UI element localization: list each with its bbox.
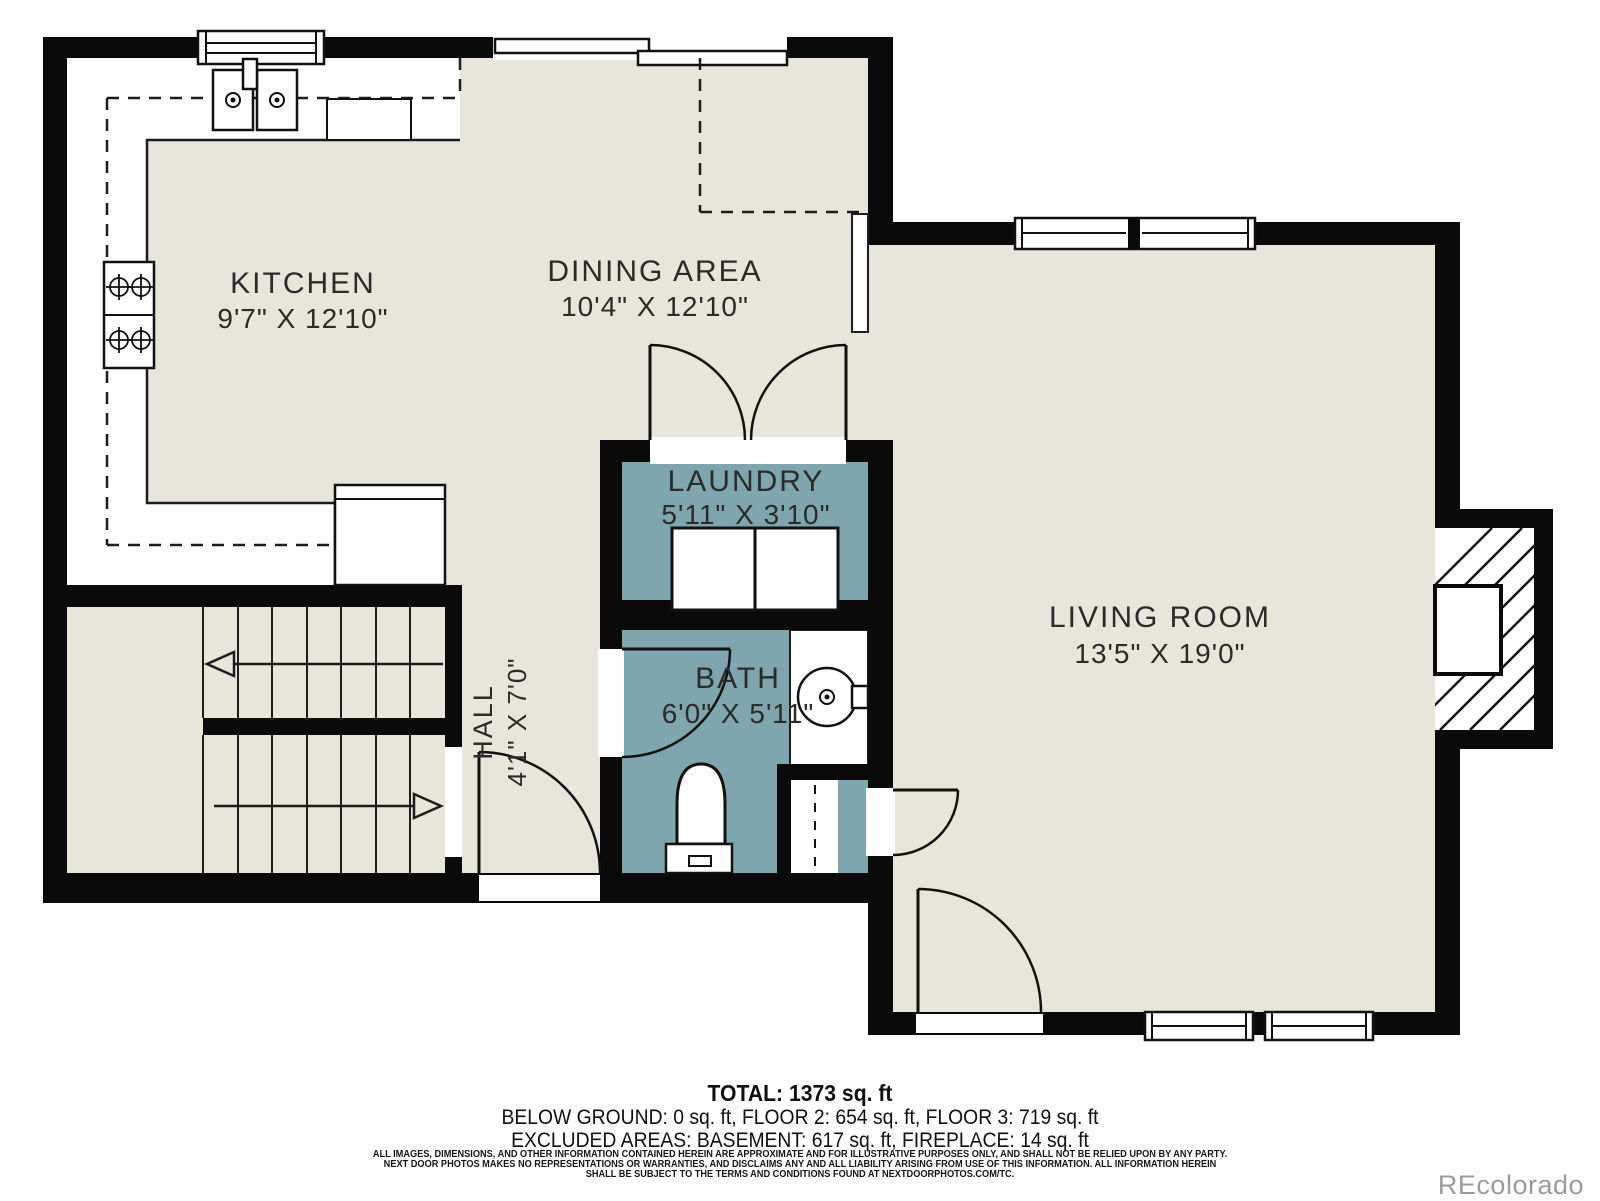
living-bottom-window-right xyxy=(1265,1012,1373,1040)
wall-left xyxy=(43,37,67,903)
dining-label: DINING AREA xyxy=(547,255,762,288)
laundry-dims: 5'11" X 3'10" xyxy=(661,499,830,530)
laundry-door-opening xyxy=(650,437,846,464)
laundry-label: LAUNDRY xyxy=(668,465,825,498)
living-top-window xyxy=(1015,218,1255,249)
wall-closet-left xyxy=(777,764,791,873)
wall-right-upper xyxy=(1435,222,1460,512)
stairs-door-opening xyxy=(445,747,462,857)
wall-kitchen-bottom xyxy=(43,585,462,607)
wall-bottom xyxy=(43,873,893,903)
wall-stairs-right-stub xyxy=(445,857,462,873)
wall-closet-top xyxy=(777,764,893,780)
fireplace-wall-right xyxy=(1534,509,1553,749)
living-bottom-window-left xyxy=(1145,1012,1253,1040)
hall-door-opening xyxy=(479,875,600,901)
disclaimer-line-3: SHALL BE SUBJECT TO THE TERMS AND CONDIT… xyxy=(64,1170,1536,1180)
refrigerator xyxy=(335,485,445,585)
hall-dims: 4'1" X 7'0" xyxy=(502,657,532,786)
pantry-shelf xyxy=(852,214,868,332)
wall-right-lower xyxy=(1435,745,1460,1035)
wall-mid-vertical xyxy=(868,440,893,1035)
kitchen-label: KITCHEN xyxy=(230,267,376,300)
bath-dims: 6'0" X 5'11" xyxy=(662,698,815,729)
bath-door-opening xyxy=(598,649,624,757)
kitchen-window xyxy=(198,31,324,64)
floor-plan-svg: KITCHEN 9'7" X 12'10" DINING AREA 10'4" … xyxy=(0,0,1600,1200)
fireplace-firebox xyxy=(1435,586,1501,674)
wall-stairs-divider xyxy=(203,718,462,735)
living-label: LIVING ROOM xyxy=(1049,601,1271,634)
hall-label: HALL xyxy=(468,684,498,760)
washer xyxy=(672,528,755,610)
floor-plan: KITCHEN 9'7" X 12'10" DINING AREA 10'4" … xyxy=(0,0,1600,1200)
dryer xyxy=(755,528,838,610)
kitchen-dims: 9'7" X 12'10" xyxy=(217,303,388,334)
laundry-fixtures xyxy=(672,528,838,610)
closet-door-opening xyxy=(866,788,895,856)
floor-areas-text: BELOW GROUND: 0 sq. ft, FLOOR 2: 654 sq.… xyxy=(64,1106,1536,1130)
living-dims: 13'5" X 19'0" xyxy=(1074,638,1245,669)
total-area-text: TOTAL: 1373 sq. ft xyxy=(64,1080,1536,1107)
wall-dining-right xyxy=(868,37,893,245)
bath-label: BATH xyxy=(695,662,781,695)
dishwasher xyxy=(327,99,411,140)
dining-dims: 10'4" X 12'10" xyxy=(561,291,749,322)
recolorado-watermark: REcolorado xyxy=(1438,1170,1584,1201)
stove xyxy=(104,262,154,368)
entry-door-opening xyxy=(916,1014,1043,1033)
